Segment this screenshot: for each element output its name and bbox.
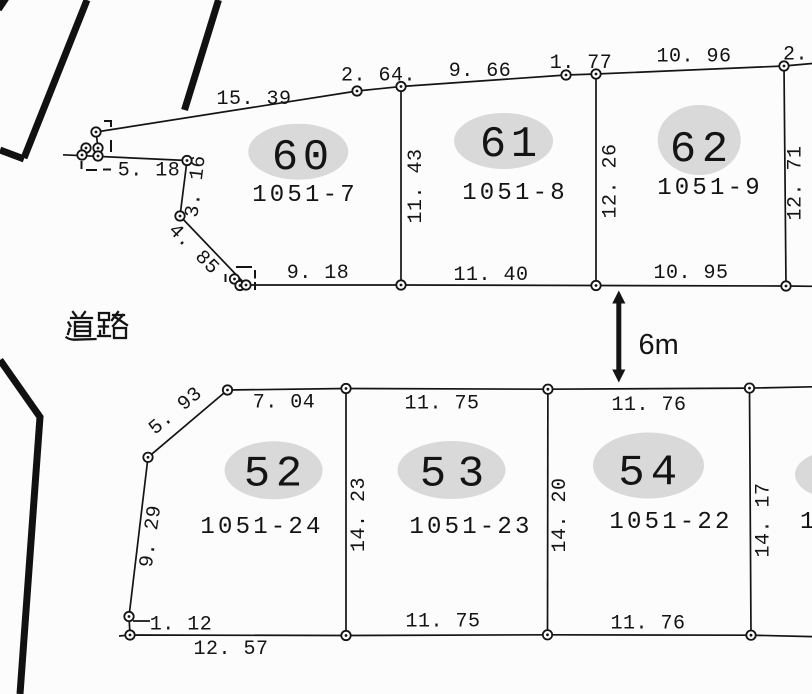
svg-text:4: 4 — [651, 449, 677, 499]
svg-text:1051-9: 1051-9 — [657, 175, 763, 202]
svg-text:1. 12: 1. 12 — [150, 614, 213, 637]
svg-text:2: 2 — [702, 125, 728, 175]
svg-text:11. 40: 11. 40 — [453, 264, 528, 287]
svg-text:14. 20: 14. 20 — [549, 477, 572, 552]
svg-text:2. 64.: 2. 64. — [341, 65, 416, 88]
svg-text:10. 96: 10. 96 — [656, 46, 731, 69]
svg-text:11. 76: 11. 76 — [610, 613, 685, 636]
svg-text:6: 6 — [670, 125, 696, 175]
svg-text:15. 39: 15. 39 — [216, 88, 291, 111]
svg-text:5. 18: 5. 18 — [118, 160, 181, 183]
svg-text:11. 75: 11. 75 — [404, 393, 479, 416]
svg-text:7. 04: 7. 04 — [253, 392, 316, 415]
svg-text:1051-24: 1051-24 — [200, 514, 323, 541]
svg-text:5: 5 — [618, 449, 644, 499]
svg-text:0: 0 — [303, 133, 329, 183]
svg-text:14. 17: 14. 17 — [753, 482, 776, 557]
svg-text:5: 5 — [420, 450, 446, 500]
svg-text:10: 10 — [800, 509, 812, 536]
svg-text:1051-22: 1051-22 — [609, 509, 732, 536]
svg-text:11. 43: 11. 43 — [405, 148, 428, 223]
svg-text:2: 2 — [276, 450, 302, 500]
svg-text:14. 23: 14. 23 — [348, 477, 371, 552]
svg-text:9. 66: 9. 66 — [449, 60, 512, 83]
svg-text:1051-23: 1051-23 — [409, 514, 532, 541]
svg-text:6: 6 — [480, 120, 506, 170]
svg-text:11. 75: 11. 75 — [405, 611, 480, 634]
svg-text:10. 95: 10. 95 — [653, 262, 728, 285]
svg-text:2. 07: 2. 07 — [783, 44, 812, 67]
svg-text:5: 5 — [244, 450, 270, 500]
svg-text:6m: 6m — [639, 329, 679, 361]
svg-text:1. 77: 1. 77 — [550, 52, 613, 75]
svg-text:12. 71: 12. 71 — [785, 145, 808, 220]
svg-text:12. 57: 12. 57 — [193, 638, 268, 661]
svg-text:3: 3 — [458, 450, 484, 500]
svg-text:6: 6 — [272, 133, 298, 183]
svg-text:11. 76: 11. 76 — [611, 394, 686, 417]
svg-text:9. 18: 9. 18 — [287, 262, 350, 285]
svg-text:1051-7: 1051-7 — [252, 182, 358, 209]
svg-text:1051-8: 1051-8 — [462, 180, 568, 207]
svg-text:1: 1 — [511, 120, 537, 170]
svg-text:12. 26: 12. 26 — [600, 143, 623, 218]
